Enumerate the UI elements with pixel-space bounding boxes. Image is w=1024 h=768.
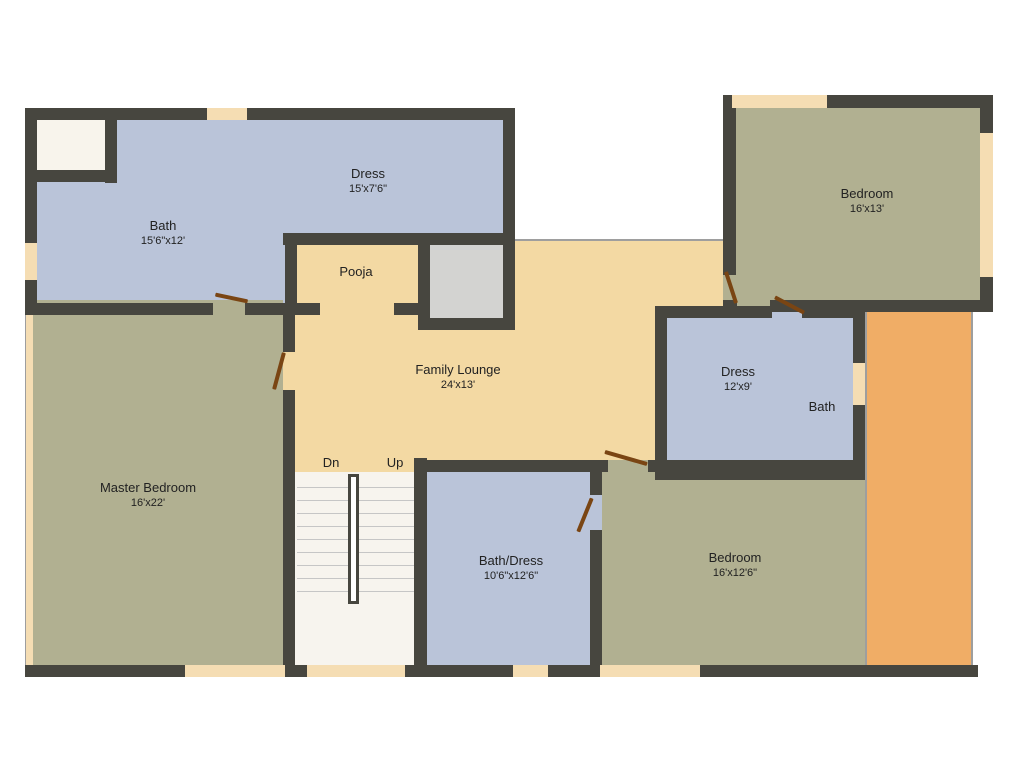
wall-segment <box>25 303 213 315</box>
balcony-strip <box>865 312 973 667</box>
room-dims: 12'x9' <box>678 380 798 394</box>
room-label-bedroom-top-right: Bedroom 16'x13' <box>787 186 947 216</box>
room-dims: 16'x13' <box>787 202 947 216</box>
wall-segment <box>25 665 978 677</box>
room-dims: 15'6"x12' <box>93 234 233 248</box>
room-name: Pooja <box>296 264 416 280</box>
window <box>207 108 247 120</box>
wall-segment <box>802 306 865 318</box>
wall-segment <box>723 95 736 275</box>
wall-segment <box>648 460 865 472</box>
room-name: Bath/Dress <box>431 553 591 569</box>
room-label-master-bedroom: Master Bedroom 16'x22' <box>68 480 228 510</box>
wall-segment <box>283 233 515 245</box>
wall-segment <box>655 306 667 480</box>
room-name: Bedroom <box>787 186 947 202</box>
store-area <box>430 245 503 320</box>
window <box>732 95 827 108</box>
wall-segment <box>418 233 430 330</box>
room-name: Dress <box>678 364 798 380</box>
wall-segment <box>25 108 515 120</box>
wall-segment <box>414 458 427 665</box>
room-name: Dress <box>298 166 438 182</box>
wall-segment <box>283 310 295 352</box>
room-name: Bath <box>782 399 862 415</box>
window <box>600 665 700 677</box>
room-label-bath-top: Bath 15'6"x12' <box>93 218 233 248</box>
stairs-up-label: Up <box>380 455 410 471</box>
room-label-bedroom-bottom: Bedroom 16'x12'6" <box>655 550 815 580</box>
room-label-dress-top: Dress 15'x7'6" <box>298 166 438 196</box>
wall-segment <box>590 530 602 665</box>
room-name: Bedroom <box>655 550 815 566</box>
wall-segment <box>283 390 295 667</box>
wall-segment <box>418 318 515 330</box>
room-name: Bath <box>93 218 233 234</box>
window <box>185 665 285 677</box>
wall-segment <box>655 306 772 318</box>
room-label-bath-right: Bath <box>782 399 862 415</box>
floor-plan: Dress 15'x7'6" Bath 15'6"x12' Pooja Bedr… <box>0 0 1024 768</box>
stairs-down-label: Dn <box>316 455 346 471</box>
window <box>25 243 37 280</box>
bath-inset-area <box>33 113 107 173</box>
room-label-bath-dress: Bath/Dress 10'6"x12'6" <box>431 553 591 583</box>
room-name: Master Bedroom <box>68 480 228 496</box>
room-name: Family Lounge <box>378 362 538 378</box>
window <box>513 665 548 677</box>
window <box>853 363 865 405</box>
stair-steps-right <box>359 475 414 603</box>
room-dims: 10'6"x12'6" <box>431 569 591 583</box>
room-label-dress-right: Dress 12'x9' <box>678 364 798 394</box>
wall-segment <box>590 460 602 495</box>
window <box>980 133 993 277</box>
terrace-edge-line <box>515 239 723 241</box>
wall-segment <box>25 170 117 182</box>
stair-steps-left <box>297 475 349 603</box>
room-dims: 16'x12'6" <box>655 566 815 580</box>
wall-segment <box>503 108 515 330</box>
room-label-family-lounge: Family Lounge 24'x13' <box>378 362 538 392</box>
stair-divider <box>348 474 359 604</box>
room-dims: 16'x22' <box>68 496 228 510</box>
wall-segment <box>414 460 608 472</box>
window <box>307 665 405 677</box>
master-left-window-strip <box>25 310 33 665</box>
room-label-pooja: Pooja <box>296 264 416 280</box>
room-dims: 24'x13' <box>378 378 538 392</box>
room-dims: 15'x7'6" <box>298 182 438 196</box>
